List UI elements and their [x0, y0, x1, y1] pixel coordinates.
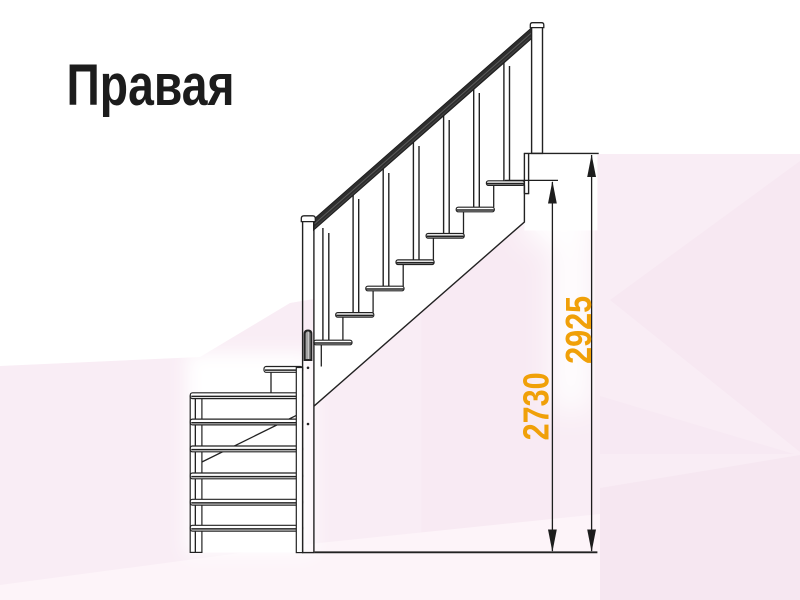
svg-text:2925: 2925: [558, 296, 599, 364]
svg-text:2730: 2730: [516, 372, 557, 440]
svg-text:Правая: Правая: [67, 53, 235, 118]
